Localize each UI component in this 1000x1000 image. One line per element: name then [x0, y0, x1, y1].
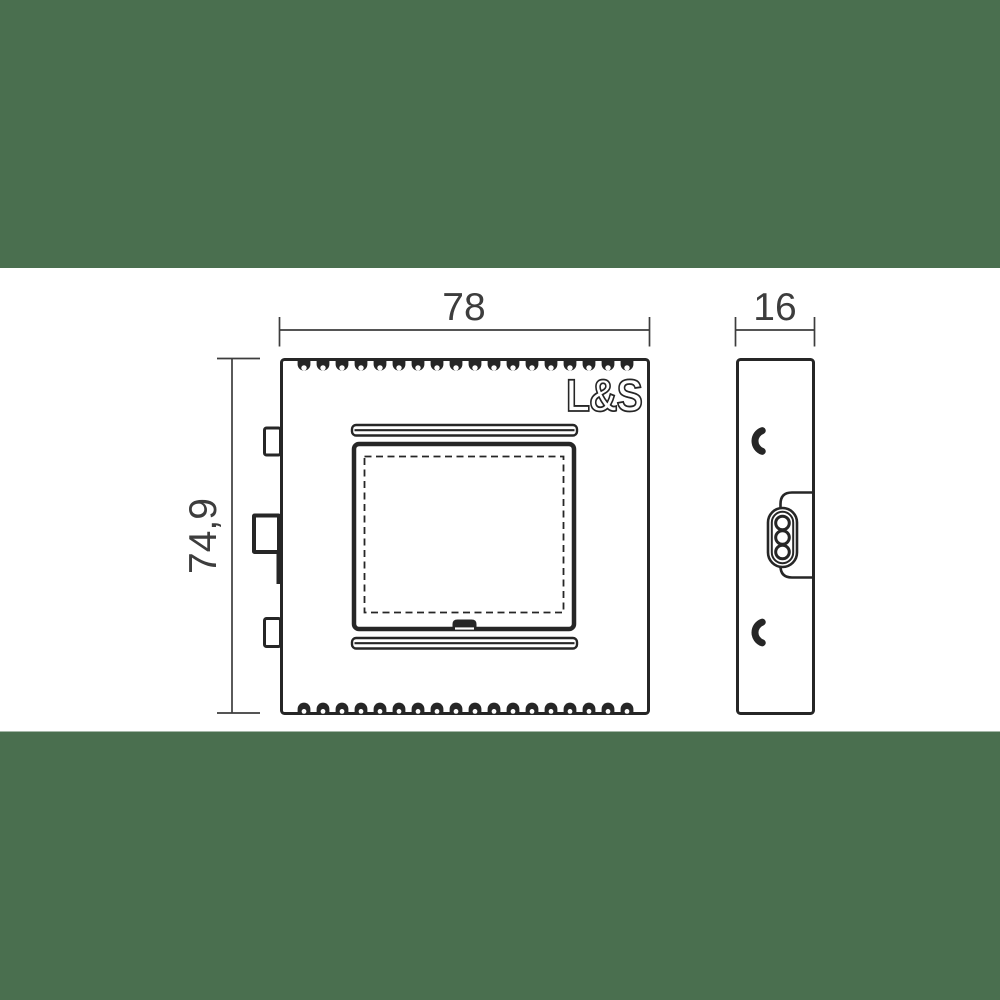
dimension-label-depth: 16: [753, 286, 796, 329]
connector-pin: [776, 516, 790, 530]
connector-pin: [776, 531, 790, 545]
dimension-label-height: 74,9: [182, 498, 225, 574]
left-tab-bottom: [265, 619, 281, 647]
left-tab-top: [265, 428, 281, 455]
left-tab-middle: [254, 516, 279, 553]
background-band-top: [0, 0, 1000, 268]
window-latch-notch: [453, 620, 477, 628]
brand-logo: L&S: [566, 370, 642, 421]
connector-pin: [776, 545, 790, 559]
technical-drawing: L&S: [0, 0, 1000, 1000]
window-latch-slit: [455, 627, 474, 629]
connector-pill: [768, 508, 797, 567]
background-band-bottom: [0, 732, 1000, 1000]
page: L&S: [0, 0, 1000, 1000]
dimension-label-width: 78: [442, 286, 485, 329]
